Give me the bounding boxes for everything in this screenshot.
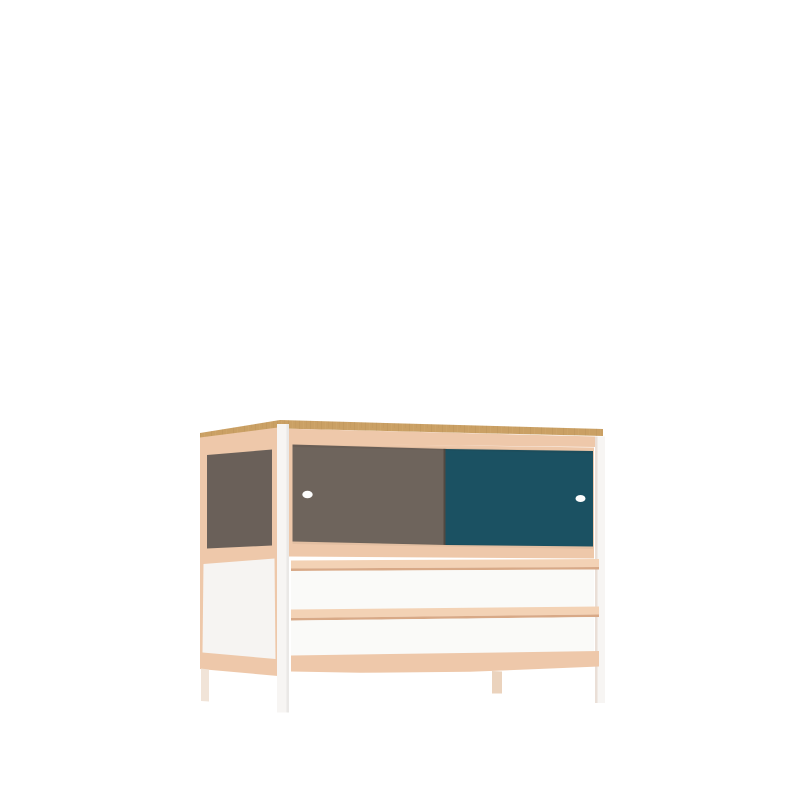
drawer-1-beech-lip bbox=[291, 559, 599, 569]
sliding-door-gray bbox=[293, 445, 448, 546]
side-panel-white bbox=[203, 559, 276, 660]
leg-back-right bbox=[492, 671, 502, 694]
leg-front-left-shading bbox=[287, 424, 290, 713]
leg-back-left bbox=[201, 669, 209, 702]
drawer-2-front bbox=[291, 617, 594, 657]
teal-door-finger-hole bbox=[576, 495, 586, 502]
product-render-canvas bbox=[0, 0, 800, 800]
sideboard-render bbox=[0, 0, 800, 800]
side-panel-gray bbox=[207, 450, 272, 549]
sliding-door-teal bbox=[446, 449, 594, 547]
background bbox=[0, 0, 800, 800]
gray-door-finger-hole bbox=[302, 491, 312, 498]
drawer-1-front bbox=[291, 570, 594, 610]
